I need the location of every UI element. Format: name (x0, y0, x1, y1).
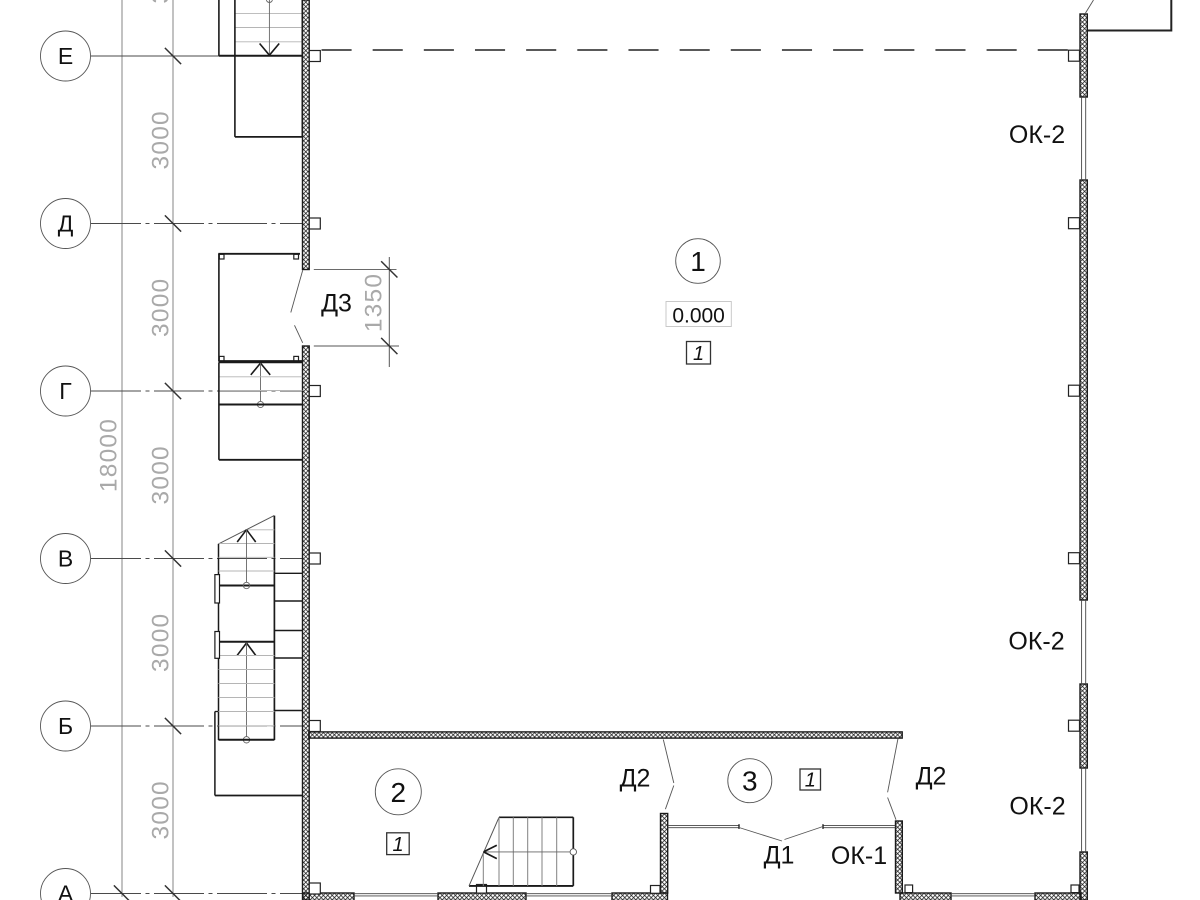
svg-text:ОК-2: ОК-2 (1009, 793, 1065, 821)
svg-text:ОК-2: ОК-2 (1008, 628, 1064, 656)
svg-text:3: 3 (742, 766, 758, 797)
svg-text:Е: Е (58, 43, 73, 69)
svg-text:3000: 3000 (148, 780, 175, 839)
svg-text:В: В (58, 546, 73, 572)
svg-text:ОК-2: ОК-2 (1009, 121, 1065, 149)
svg-text:3000: 3000 (148, 0, 175, 4)
svg-text:1: 1 (392, 834, 403, 856)
svg-text:1: 1 (693, 343, 704, 365)
svg-text:Д3: Д3 (321, 290, 352, 318)
svg-text:3000: 3000 (148, 278, 175, 337)
svg-text:Г: Г (59, 378, 72, 404)
svg-text:Д2: Д2 (916, 763, 947, 791)
svg-text:Д: Д (58, 211, 74, 237)
svg-text:1350: 1350 (361, 273, 388, 332)
svg-text:Б: Б (58, 713, 73, 739)
svg-text:18000: 18000 (96, 418, 123, 492)
svg-text:1: 1 (805, 769, 816, 791)
svg-text:3000: 3000 (148, 110, 175, 169)
svg-text:Д1: Д1 (764, 842, 795, 870)
svg-text:2: 2 (391, 777, 407, 808)
svg-text:1: 1 (690, 246, 706, 277)
svg-text:Д2: Д2 (620, 765, 651, 793)
svg-text:3000: 3000 (148, 445, 175, 504)
svg-text:А: А (58, 881, 74, 900)
svg-text:3000: 3000 (148, 613, 175, 672)
svg-text:ОК-1: ОК-1 (831, 842, 887, 870)
svg-text:0.000: 0.000 (672, 305, 725, 328)
